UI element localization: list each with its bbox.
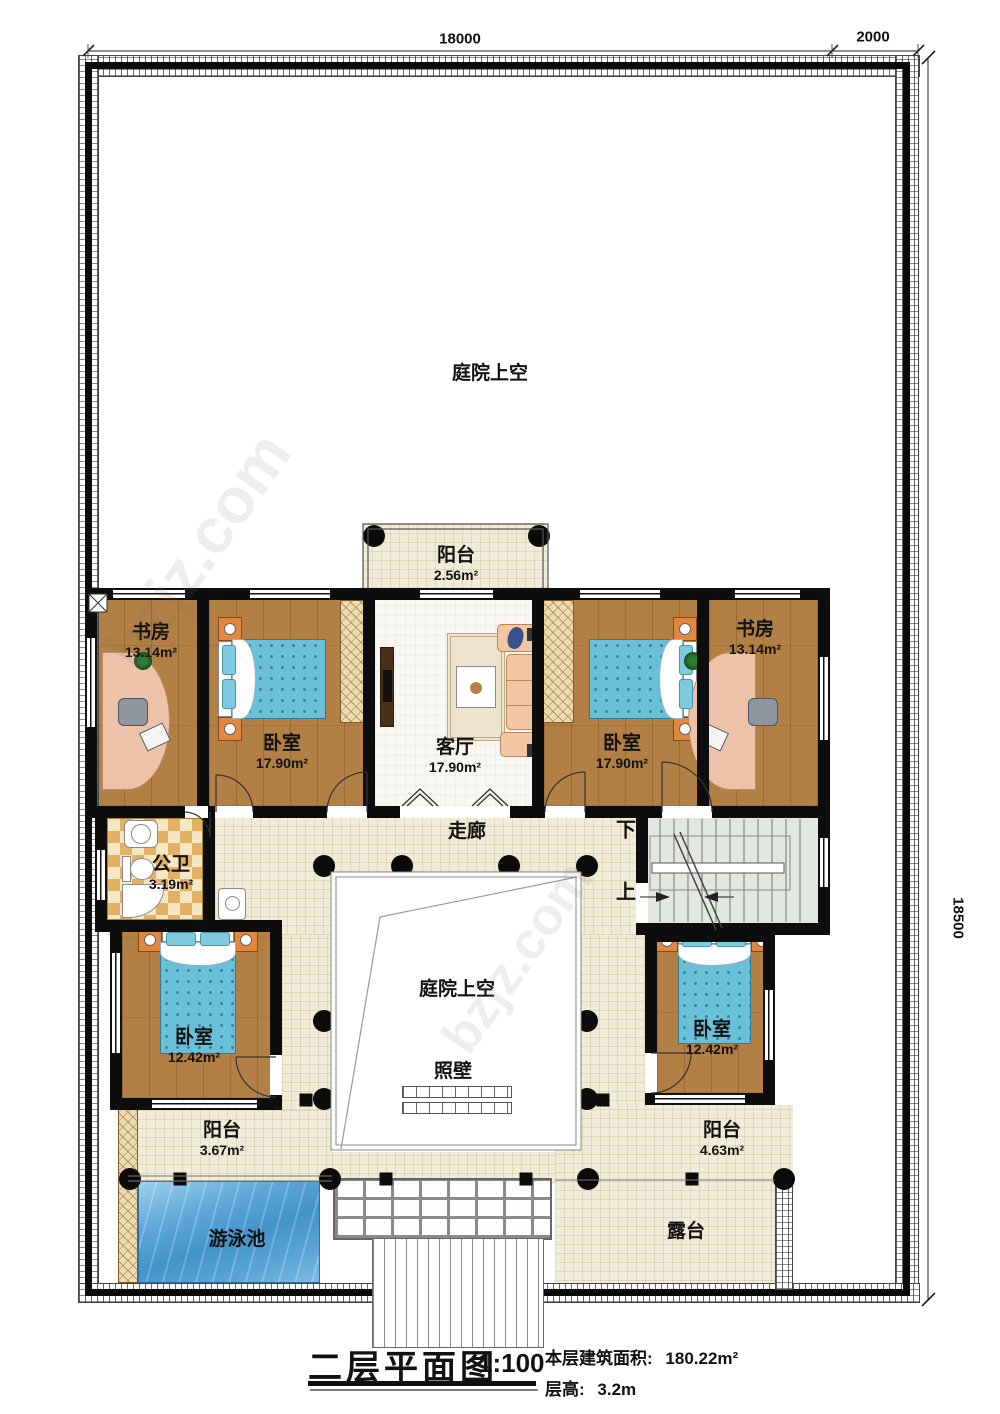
column bbox=[576, 855, 598, 877]
label-terrace: 露台 bbox=[667, 1221, 705, 1243]
door-opening bbox=[270, 1055, 282, 1095]
label-living-room: 客厅 17.90m² bbox=[429, 737, 481, 775]
wall bbox=[697, 588, 709, 818]
screen-wall-row bbox=[402, 1086, 512, 1098]
window bbox=[763, 990, 775, 1060]
label-balcony-right: 阳台 4.63m² bbox=[700, 1120, 744, 1158]
lamp bbox=[224, 623, 236, 635]
title-underline-thick bbox=[308, 1381, 536, 1386]
room-name: 卧室 bbox=[256, 733, 308, 755]
label-study-right: 书房 13.14m² bbox=[729, 619, 781, 657]
floor-height-label: 层高: bbox=[545, 1380, 585, 1399]
washing-machine-door bbox=[225, 896, 240, 911]
room-name: 客厅 bbox=[429, 737, 481, 759]
column bbox=[313, 1010, 335, 1032]
room-area: 17.90m² bbox=[596, 755, 648, 771]
boundary-wall-top bbox=[85, 62, 910, 69]
pillow bbox=[222, 679, 236, 709]
terrace-railing bbox=[775, 1183, 793, 1290]
label-stair-down: 下 bbox=[616, 820, 636, 843]
label-courtyard-center: 庭院上空 bbox=[419, 979, 495, 1001]
column-square bbox=[597, 1094, 610, 1107]
sink-bowl bbox=[131, 824, 151, 844]
pillow bbox=[166, 932, 196, 946]
pillow bbox=[679, 679, 693, 709]
door-opening bbox=[327, 806, 367, 818]
lamp bbox=[144, 934, 156, 946]
room-area: 12.42m² bbox=[686, 1041, 738, 1057]
exterior-stairs bbox=[372, 1238, 544, 1348]
label-corridor: 走廊 bbox=[448, 821, 486, 843]
balcony-left-side-wall bbox=[118, 1100, 138, 1283]
window bbox=[818, 657, 830, 740]
stair-entry bbox=[636, 883, 648, 923]
label-bedroom-bottom-right: 卧室 12.42m² bbox=[686, 1019, 738, 1057]
label-screen-wall: 照壁 bbox=[434, 1061, 472, 1083]
lamp bbox=[679, 623, 691, 635]
room-area: 13.14m² bbox=[125, 644, 177, 660]
boundary-wall-right bbox=[903, 62, 910, 1296]
room-area: 17.90m² bbox=[429, 759, 481, 775]
floor-area-value: 180.22m² bbox=[665, 1349, 738, 1368]
room-area: 13.14m² bbox=[729, 641, 781, 657]
room-area: 4.63m² bbox=[700, 1142, 744, 1158]
column bbox=[391, 855, 413, 877]
room-name: 卧室 bbox=[596, 733, 648, 755]
label-pool: 游泳池 bbox=[208, 1229, 265, 1251]
label-bathroom: 公卫 3.19m² bbox=[149, 854, 193, 892]
floor-terrace bbox=[555, 1105, 793, 1290]
door-opening bbox=[215, 806, 253, 818]
label-bedroom-top-left: 卧室 17.90m² bbox=[256, 733, 308, 771]
column bbox=[313, 855, 335, 877]
pillow bbox=[222, 645, 236, 675]
floor-stairs bbox=[648, 818, 818, 923]
wardrobe bbox=[542, 600, 574, 723]
window bbox=[110, 953, 122, 1053]
lamp bbox=[240, 934, 252, 946]
balcony-door bbox=[420, 588, 493, 600]
screen-wall-row bbox=[402, 1102, 512, 1114]
scale-text: 1:100 bbox=[478, 1348, 545, 1379]
column-square bbox=[300, 1094, 313, 1107]
pergola-grid bbox=[333, 1178, 552, 1240]
label-balcony-top: 阳台 2.56m² bbox=[434, 545, 478, 583]
room-area: 3.67m² bbox=[200, 1142, 244, 1158]
column-square bbox=[174, 1173, 187, 1186]
lamp bbox=[679, 723, 691, 735]
dim-top-right-width: 2000 bbox=[856, 29, 889, 46]
tv bbox=[383, 670, 392, 702]
pillow bbox=[200, 932, 230, 946]
column bbox=[773, 1168, 795, 1190]
column bbox=[498, 855, 520, 877]
column bbox=[577, 1168, 599, 1190]
room-name: 书房 bbox=[729, 619, 781, 641]
floor-height-value: 3.2m bbox=[597, 1380, 636, 1399]
table-flowers bbox=[470, 682, 482, 694]
room-area: 17.90m² bbox=[256, 755, 308, 771]
wall bbox=[197, 588, 209, 818]
label-bedroom-bottom-left: 卧室 12.42m² bbox=[168, 1027, 220, 1065]
window bbox=[250, 588, 330, 600]
door-opening bbox=[400, 806, 510, 818]
lamp bbox=[224, 723, 236, 735]
dim-top-width: 18000 bbox=[439, 31, 481, 48]
room-name: 公卫 bbox=[149, 854, 193, 876]
room-area: 2.56m² bbox=[434, 567, 478, 583]
office-chair bbox=[118, 698, 148, 726]
column bbox=[319, 1168, 341, 1190]
window bbox=[113, 588, 185, 600]
wall bbox=[363, 588, 375, 818]
column-square bbox=[520, 1173, 533, 1186]
door-opening bbox=[662, 806, 712, 818]
screen-wall bbox=[402, 1086, 512, 1113]
wall bbox=[203, 806, 215, 932]
room-name: 阳台 bbox=[700, 1120, 744, 1142]
room-name: 阳台 bbox=[434, 545, 478, 567]
room-area: 12.42m² bbox=[168, 1049, 220, 1065]
room-name: 阳台 bbox=[200, 1120, 244, 1142]
wall bbox=[95, 920, 282, 932]
window bbox=[735, 588, 800, 600]
dim-right-height: 18500 bbox=[950, 897, 967, 939]
door-opening bbox=[185, 806, 208, 818]
window bbox=[85, 638, 97, 727]
floor-plan-page: 庭院上空 阳台 2.56m² 书房 13.14m² 卧室 17.90m² 客厅 … bbox=[0, 0, 1000, 1414]
label-bedroom-top-right: 卧室 17.90m² bbox=[596, 733, 648, 771]
room-name: 卧室 bbox=[686, 1019, 738, 1041]
window bbox=[655, 1093, 745, 1105]
column bbox=[528, 525, 550, 547]
column bbox=[576, 1010, 598, 1032]
floor-area-label: 本层建筑面积: bbox=[545, 1349, 653, 1368]
room-name: 书房 bbox=[125, 622, 177, 644]
door-opening bbox=[645, 1053, 657, 1093]
office-chair bbox=[748, 698, 778, 726]
column bbox=[119, 1168, 141, 1190]
room-area: 3.19m² bbox=[149, 876, 193, 892]
wall bbox=[532, 588, 544, 818]
title-underline-thin bbox=[310, 1389, 538, 1391]
label-balcony-left: 阳台 3.67m² bbox=[200, 1120, 244, 1158]
wall bbox=[645, 930, 775, 942]
column-square bbox=[380, 1173, 393, 1186]
door-opening bbox=[545, 806, 585, 818]
column-square bbox=[686, 1173, 699, 1186]
window bbox=[152, 1098, 257, 1110]
label-courtyard-top: 庭院上空 bbox=[452, 363, 528, 385]
window bbox=[580, 588, 660, 600]
label-study-left: 书房 13.14m² bbox=[125, 622, 177, 660]
column bbox=[363, 525, 385, 547]
column bbox=[576, 1088, 598, 1110]
label-stair-up: 上 bbox=[616, 882, 636, 905]
window bbox=[818, 838, 830, 887]
room-name: 卧室 bbox=[168, 1027, 220, 1049]
window bbox=[95, 850, 107, 900]
column bbox=[313, 1088, 335, 1110]
info-block: 本层建筑面积: 180.22m² 层高: 3.2m bbox=[545, 1344, 865, 1404]
